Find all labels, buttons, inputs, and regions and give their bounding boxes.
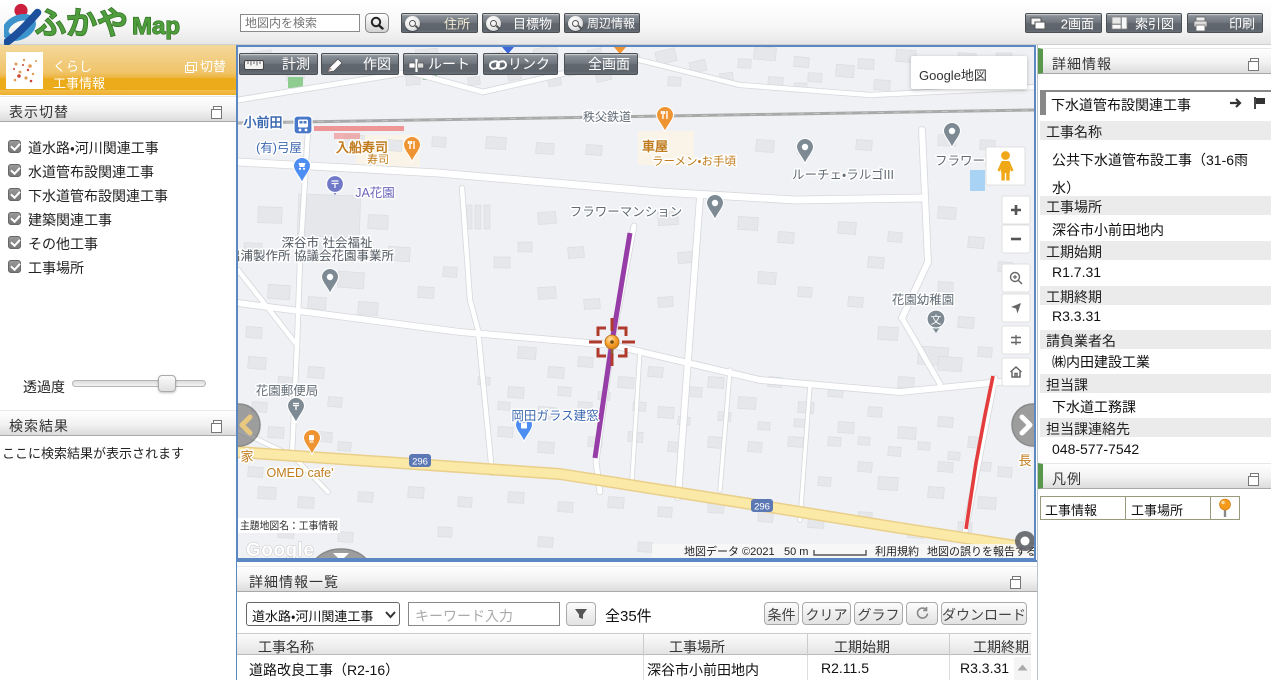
svg-text:岡田ガラス建窓: 岡田ガラス建窓 [511,409,599,423]
svg-text:利用規約: 利用規約 [875,544,919,558]
svg-text:ルーチェ・ラルゴIII: ルーチェ・ラルゴIII [792,167,894,182]
svg-text:地図データ ©2021: 地図データ ©2021 [684,544,775,558]
svg-text:Map: Map [132,13,180,40]
svg-text:Google: Google [246,540,314,558]
svg-text:296: 296 [754,502,770,513]
svg-text:ふかや: ふかや [35,6,128,41]
svg-text:ラーメン・お手頃: ラーメン・お手頃 [652,154,736,168]
svg-text:主題地図名：工事情報: 主題地図名：工事情報 [240,519,338,532]
svg-text:OMED cafe': OMED cafe' [267,466,334,480]
svg-text:出浦製作所 協議会花園事業所: 出浦製作所 協議会花園事業所 [238,248,394,263]
svg-text:小前田: 小前田 [243,115,282,130]
svg-text:文: 文 [931,313,942,327]
svg-text:車屋: 車屋 [642,139,668,154]
svg-text:花園郵便局: 花園郵便局 [256,384,319,398]
svg-text:深谷市 社会福祉: 深谷市 社会福祉 [282,235,373,250]
svg-text:(有)弓屋: (有)弓屋 [256,141,302,155]
svg-text:寿司: 寿司 [367,152,389,166]
svg-text:フラワーマンション: フラワーマンション [570,205,683,219]
svg-text:入船寿司: 入船寿司 [335,140,388,155]
svg-text:秩父鉄道: 秩父鉄道 [583,109,631,124]
svg-text:フラワー: フラワー [935,154,985,168]
svg-text:花園幼稚園: 花園幼稚園 [892,292,955,307]
svg-text:JA花園: JA花園 [355,186,395,200]
svg-text:296: 296 [412,457,428,468]
svg-text:家: 家 [240,449,253,464]
svg-text:50 m: 50 m [784,546,808,558]
svg-text:長: 長 [1018,453,1031,468]
